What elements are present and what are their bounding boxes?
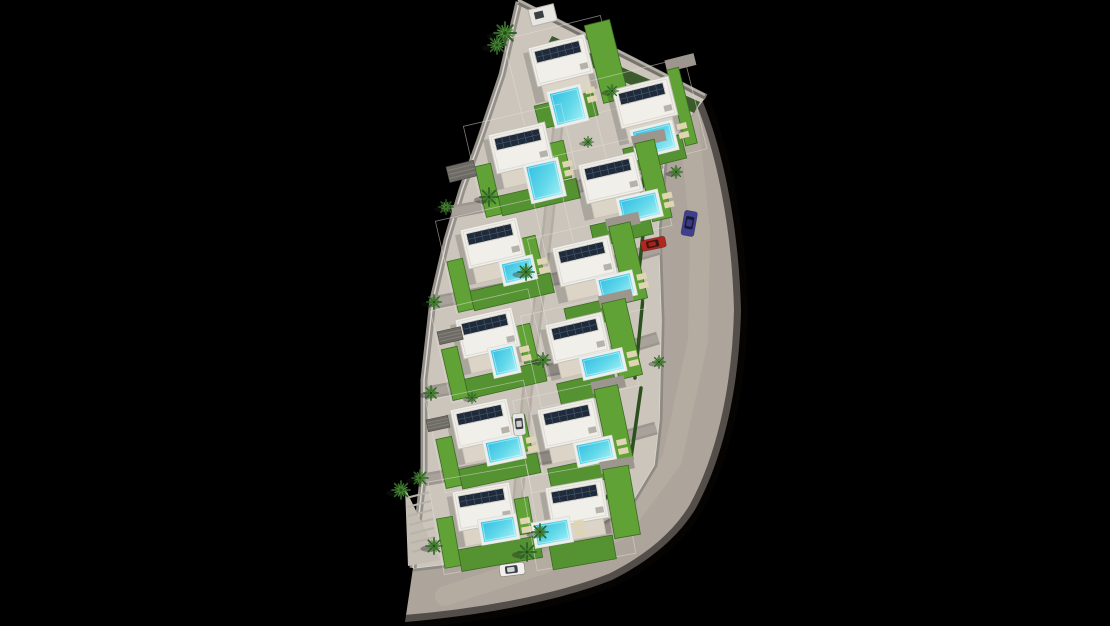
- car-white-alley: [512, 413, 526, 436]
- palm-crown: [503, 31, 507, 35]
- scene-canvas: [0, 0, 1110, 626]
- site-plan-render: [0, 0, 1110, 626]
- palm-crown: [495, 43, 498, 46]
- palm-crown: [587, 141, 589, 143]
- palm-crown: [419, 477, 422, 480]
- palm-crown: [675, 171, 677, 173]
- palm-crown: [525, 550, 528, 553]
- palm-crown: [539, 531, 542, 534]
- palm-crown: [658, 361, 660, 363]
- screenshot-canvas: [0, 0, 1110, 626]
- palm-crown: [611, 90, 613, 92]
- palm-crown: [433, 301, 436, 304]
- palm-crown: [433, 545, 436, 548]
- palm-crown: [525, 271, 528, 274]
- palm-crown: [399, 488, 402, 491]
- car-roof: [516, 421, 522, 428]
- palm-crown: [430, 392, 433, 395]
- car-roof: [507, 567, 515, 573]
- palm-crown: [487, 195, 490, 198]
- palm-crown: [542, 359, 545, 362]
- car-roof: [686, 219, 693, 227]
- palm-crown: [445, 206, 448, 209]
- palm-crown: [471, 397, 473, 399]
